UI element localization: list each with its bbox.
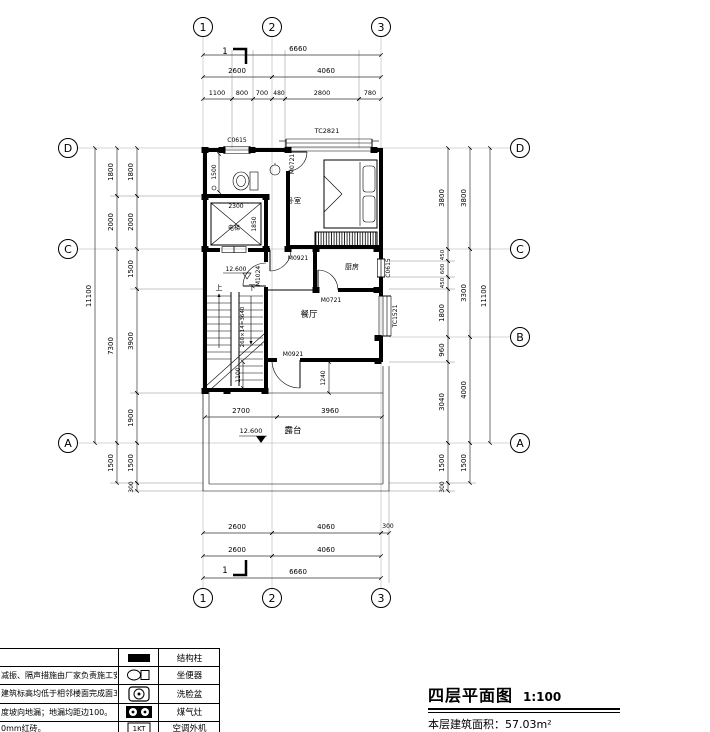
grid-col-1-top: 1 [200, 21, 207, 34]
level-terrace: 12.600 [240, 427, 263, 435]
dim-bot1-1: 2600 [228, 523, 246, 531]
room-label-bedroom: 卧室 [287, 196, 301, 205]
legend-note: 建筑标高均低于相邻楼面完成面30 [1, 684, 117, 703]
level-stair: 12.600 [226, 266, 247, 273]
door-label-m1024: M1024 [255, 266, 262, 287]
structural-column-icon [118, 649, 159, 666]
grid-row-d-left: D [64, 142, 72, 155]
dim-top-detail-3: 700 [256, 89, 268, 97]
drawing-scale: 1:100 [523, 690, 561, 704]
title-underline [428, 708, 620, 713]
dim-left-inner-3: 1500 [127, 260, 135, 278]
legend-table: 结构柱 减振、隔声措施由厂家负责施工安装； 坐便器 建筑标高均低于相邻楼面完成面… [0, 648, 220, 732]
dim-top-detail-6: 780 [364, 89, 376, 97]
dim-bot-overall: 6660 [289, 568, 307, 576]
door-label-m0921-terrace: M0921 [283, 351, 304, 358]
dim-right-mid-4: 1500 [460, 454, 468, 472]
legend-row-column: 结构柱 [0, 649, 219, 667]
dim-top-detail-4: 480 [273, 90, 285, 97]
drawing-title: 四层平面图 [428, 682, 513, 706]
dim-right-inner-6: 960 [438, 343, 446, 356]
dim-right-inner-3: 600 [440, 263, 446, 274]
door-label-m0721-kitchen: M0721 [321, 297, 342, 304]
planter-hatch [315, 232, 377, 246]
legend-name: 洗脸盆 [158, 684, 219, 703]
dim-right-mid-2: 3300 [460, 284, 468, 302]
legend-name: 结构柱 [158, 649, 219, 666]
stair-run-note: 260×14=3640 [240, 306, 246, 347]
dim-bot1-3: 300 [382, 523, 394, 530]
floor-plan-sheet: 1 2 3 1 2 3 D C A D C B A 6660 2600 4060… [0, 0, 710, 732]
dim-right-inner-4: 450 [440, 277, 446, 288]
dim-top-detail-1: 1100 [209, 89, 226, 97]
dim-right-mid-1: 3800 [460, 189, 468, 207]
dim-left-inner-5: 1900 [127, 409, 135, 427]
grid-row-a-right: A [516, 437, 524, 450]
dim-right-inner-7: 3040 [438, 393, 446, 411]
dim-chain-bottom: 2600 4060 300 2600 4060 6660 [203, 491, 394, 583]
grid-row-a-left: A [64, 437, 72, 450]
dim-top-mid-2: 4060 [317, 67, 335, 75]
floor-plan-svg: 1 2 3 1 2 3 D C A D C B A 6660 2600 4060… [0, 0, 710, 645]
section-marker-top: 1 [222, 47, 227, 57]
dim-left-inner-2: 2000 [127, 213, 135, 231]
dim-right-inner-9: 300 [439, 481, 446, 493]
room-label-dining: 餐厅 [300, 310, 318, 320]
dim-right-outer: 11100 [480, 285, 488, 307]
toilet-icon [118, 666, 159, 684]
dim-right-inner-1: 3800 [438, 189, 446, 207]
elevator: 2300 1850 电梯 [211, 203, 261, 245]
grid-col-1-bottom: 1 [200, 592, 207, 605]
bed [324, 160, 377, 228]
legend-row-toilet: 减振、隔声措施由厂家负责施工安装； 坐便器 [0, 666, 219, 685]
dim-terrace-right: 3960 [321, 407, 339, 415]
dim-bot1-2: 4060 [317, 523, 335, 531]
dim-top-overall: 6660 [289, 45, 307, 53]
door-label-m0721-bedroom: M0721 [289, 154, 296, 175]
dim-left-inner-4: 3900 [127, 332, 135, 350]
dim-door-offset: 1240 [320, 370, 327, 385]
legend-row-ac: 0mm红砖。 1KT 空调外机 [0, 721, 219, 732]
svg-text:1KT: 1KT [133, 725, 147, 732]
grid-col-2-top: 2 [269, 21, 276, 34]
floor-area-label: 本层建筑面积：57.03m² [428, 716, 623, 732]
legend-name: 煤气灶 [158, 703, 219, 721]
dim-right-mid-3: 4000 [460, 381, 468, 399]
grid-row-d-right: D [516, 142, 524, 155]
gas-stove-icon [118, 703, 159, 721]
grid-col-3-bottom: 3 [378, 592, 385, 605]
dim-elevator-width: 2300 [228, 203, 243, 210]
dim-right-inner-2: 450 [440, 249, 446, 260]
room-label-kitchen: 厨房 [345, 262, 359, 271]
dim-right-inner-5: 1800 [438, 304, 446, 322]
dim-right-inner-8: 1500 [438, 454, 446, 472]
grid-col-2-bottom: 2 [269, 592, 276, 605]
room-label-elevator: 电梯 [228, 224, 240, 232]
door-label-m0921-hall: M0921 [288, 255, 309, 262]
dim-chain-right: 3800 450 600 450 1800 960 3040 1500 300 … [389, 148, 490, 493]
legend-note [1, 649, 117, 666]
dim-left-inner-6: 1500 [127, 454, 135, 472]
legend-name: 空调外机 [158, 721, 219, 732]
legend-row-stove: 度坡向地漏；地漏均距边100。 煤气灶 [0, 703, 219, 722]
grid-col-3-top: 3 [378, 21, 385, 34]
legend-note: 度坡向地漏；地漏均距边100。 [1, 703, 117, 721]
dim-left-mid-1: 1800 [107, 163, 115, 181]
dim-stair-landing: 1100 [235, 367, 242, 382]
grid-bubbles: 1 2 3 1 2 3 D C A D C B A [59, 18, 530, 608]
dim-top-mid-1: 2600 [228, 67, 246, 75]
dim-left-outer: 11100 [85, 285, 93, 307]
basin-icon [270, 165, 280, 175]
dim-bot2-1: 2600 [228, 546, 246, 554]
washbasin-icon [118, 684, 159, 703]
section-marker-bottom: 1 [222, 566, 227, 576]
stair-up-label: 上 [216, 283, 223, 292]
dim-top-detail-5: 2800 [314, 89, 331, 97]
ac-outdoor-unit-icon: 1KT [118, 721, 159, 732]
room-label-terrace: 露台 [284, 425, 301, 436]
grid-row-c-left: C [64, 243, 72, 256]
title-block: 四层平面图 1:100 本层建筑面积：57.03m² [428, 682, 623, 732]
legend-name: 坐便器 [158, 666, 219, 684]
window-label-c0615-right: C0615 [385, 258, 392, 278]
grid-row-b-right: B [516, 331, 524, 344]
dim-left-mid-3: 7300 [107, 337, 115, 355]
grid-row-c-right: C [516, 243, 524, 256]
dim-left-mid-4: 1500 [107, 454, 115, 472]
dim-left-inner-7: 300 [128, 481, 135, 493]
dim-bathroom: 1500 [211, 164, 218, 179]
legend-note: 减振、隔声措施由厂家负责施工安装； [1, 666, 117, 684]
window-label-tc1521: TC1521 [392, 304, 399, 328]
legend-row-basin: 建筑标高均低于相邻楼面完成面30 洗脸盆 [0, 684, 219, 704]
legend-note: 0mm红砖。 [1, 721, 117, 732]
dim-elevator-depth: 1850 [251, 216, 258, 231]
dim-chain-left: 11100 1800 2000 7300 1500 1800 2000 1500… [85, 148, 203, 493]
dim-chain-top: 6660 2600 4060 1100 800 700 480 2800 780 [203, 45, 381, 148]
dim-left-inner-1: 1800 [127, 163, 135, 181]
window-label-tc2821: TC2821 [314, 127, 340, 135]
dim-bot2-2: 4060 [317, 546, 335, 554]
dim-left-mid-2: 2000 [107, 213, 115, 231]
window-label-c0615-top: C0615 [227, 137, 247, 144]
bathroom-fixtures: 1500 [211, 154, 280, 192]
dim-terrace-left: 2700 [232, 407, 250, 415]
dim-top-detail-2: 800 [236, 89, 248, 97]
